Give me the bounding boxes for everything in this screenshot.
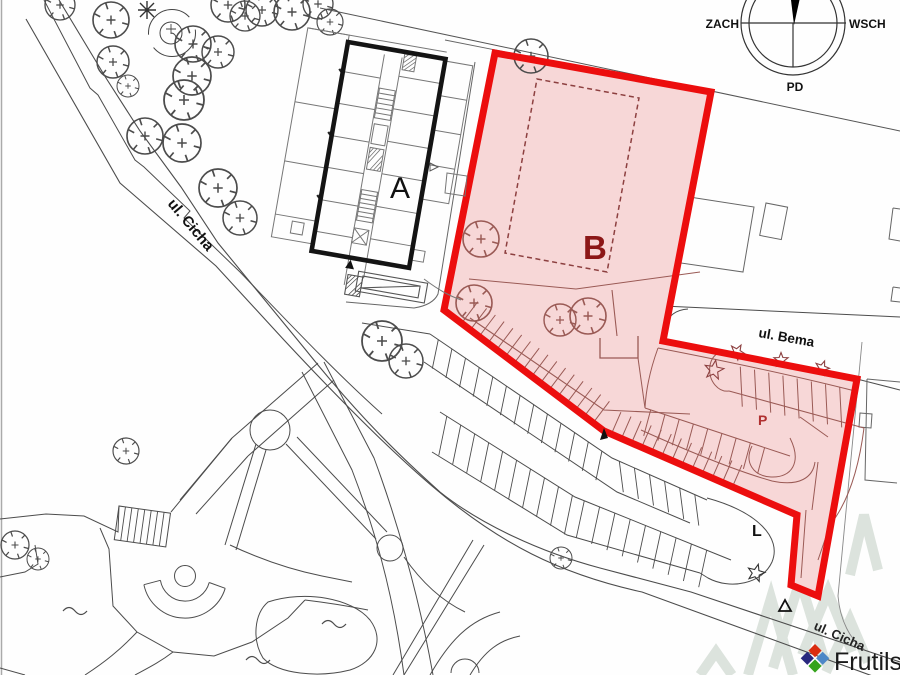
svg-text:P: P: [758, 412, 767, 428]
svg-text:WSCH: WSCH: [849, 17, 886, 31]
svg-text:L: L: [752, 523, 762, 540]
svg-text:B: B: [583, 229, 607, 266]
svg-text:ZACH: ZACH: [706, 17, 739, 31]
svg-text:PD: PD: [787, 80, 804, 94]
svg-text:Frutils: Frutils: [834, 648, 900, 675]
svg-text:A: A: [390, 172, 410, 205]
